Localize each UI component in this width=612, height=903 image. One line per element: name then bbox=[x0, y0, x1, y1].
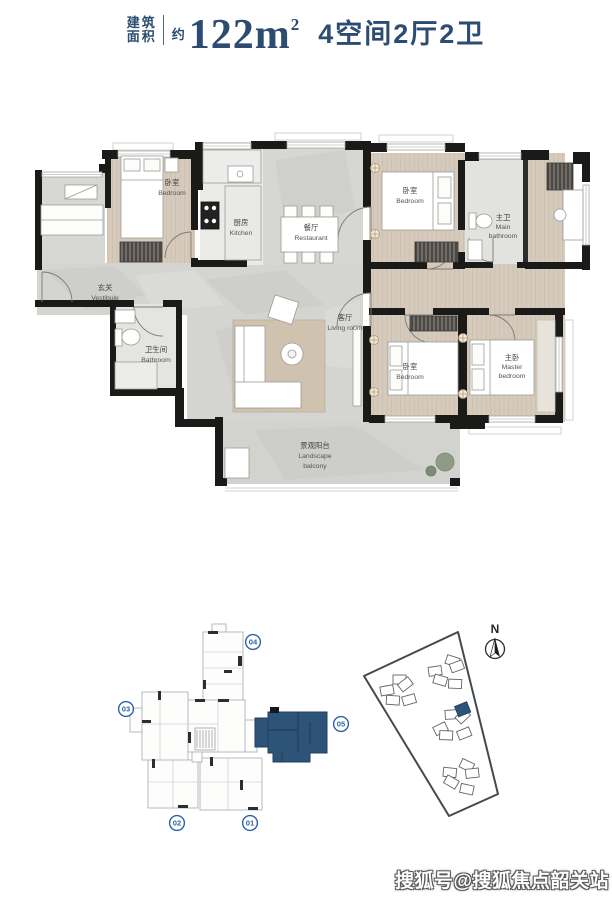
unit-circle-03: 03 bbox=[119, 702, 134, 717]
wardrobe-tl bbox=[120, 242, 162, 262]
svg-text:04: 04 bbox=[249, 638, 258, 647]
svg-text:玄关: 玄关 bbox=[98, 283, 113, 292]
svg-text:Kitchen: Kitchen bbox=[230, 230, 253, 237]
area-label-line2: 面积 bbox=[127, 30, 157, 44]
svg-text:Living room: Living room bbox=[327, 325, 362, 332]
svg-text:balcony: balcony bbox=[303, 463, 327, 470]
bed-br bbox=[388, 342, 458, 395]
svg-text:Bedroom: Bedroom bbox=[158, 190, 186, 197]
wardrobe-br bbox=[410, 316, 457, 331]
svg-text:卧室: 卧室 bbox=[165, 178, 180, 187]
svg-text:厨房: 厨房 bbox=[234, 218, 249, 227]
unit-circle-05: 05 bbox=[334, 717, 349, 732]
floorplan: 卧室 Bedroom 厨房 Kitchen 餐厅 Restaurant 玄关 V… bbox=[25, 130, 590, 500]
svg-text:05: 05 bbox=[337, 720, 346, 729]
svg-text:主卧: 主卧 bbox=[505, 353, 520, 362]
area-superscript: 2 bbox=[291, 15, 301, 34]
unit-circle-02: 02 bbox=[170, 816, 185, 831]
svg-text:bedroom: bedroom bbox=[499, 373, 526, 380]
svg-text:卧室: 卧室 bbox=[403, 186, 418, 195]
plan-header: 建筑 面积 约 122m2 4空间2厅2卫 bbox=[0, 6, 612, 54]
svg-text:N: N bbox=[491, 622, 500, 636]
highlighted-unit-05 bbox=[255, 707, 327, 762]
header-divider bbox=[163, 15, 164, 45]
site-boundary bbox=[364, 632, 498, 816]
svg-text:Master: Master bbox=[502, 364, 524, 371]
area-label: 建筑 面积 bbox=[127, 16, 157, 44]
svg-text:景观阳台: 景观阳台 bbox=[300, 441, 330, 450]
siteplan: N bbox=[352, 606, 547, 846]
svg-text:Main: Main bbox=[496, 224, 511, 231]
svg-text:Bedroom: Bedroom bbox=[396, 374, 424, 381]
svg-text:客厅: 客厅 bbox=[338, 313, 353, 322]
area-value: 122m2 bbox=[189, 5, 301, 55]
north-arrow-icon: N bbox=[486, 622, 505, 659]
svg-text:Bedroom: Bedroom bbox=[396, 198, 424, 205]
unit-circle-01: 01 bbox=[243, 816, 258, 831]
page: 建筑 面积 约 122m2 4空间2厅2卫 bbox=[0, 0, 612, 903]
keyplan: 04 03 05 02 01 bbox=[100, 612, 365, 847]
approx-label: 约 bbox=[172, 24, 185, 43]
svg-text:Restaurant: Restaurant bbox=[294, 235, 327, 242]
layout-label: 4空间2厅2卫 bbox=[318, 10, 485, 51]
svg-text:02: 02 bbox=[173, 819, 181, 828]
svg-text:Bathroom: Bathroom bbox=[141, 357, 171, 364]
svg-text:卫生间: 卫生间 bbox=[145, 345, 167, 354]
svg-text:Vestibule: Vestibule bbox=[91, 295, 119, 302]
svg-text:卧室: 卧室 bbox=[403, 362, 418, 371]
watermark: 搜狐号@搜狐焦点韶关站 bbox=[395, 866, 609, 893]
svg-text:01: 01 bbox=[246, 819, 255, 828]
unit-circle-04: 04 bbox=[246, 635, 261, 650]
area-label-line1: 建筑 bbox=[127, 16, 157, 30]
svg-text:03: 03 bbox=[122, 705, 130, 714]
svg-text:餐厅: 餐厅 bbox=[304, 223, 319, 232]
svg-text:bathroom: bathroom bbox=[489, 233, 518, 240]
wardrobe-tr bbox=[415, 242, 458, 262]
svg-text:主卫: 主卫 bbox=[496, 213, 511, 222]
area-number: 122m bbox=[189, 12, 291, 58]
svg-text:Landscape: Landscape bbox=[298, 453, 331, 460]
